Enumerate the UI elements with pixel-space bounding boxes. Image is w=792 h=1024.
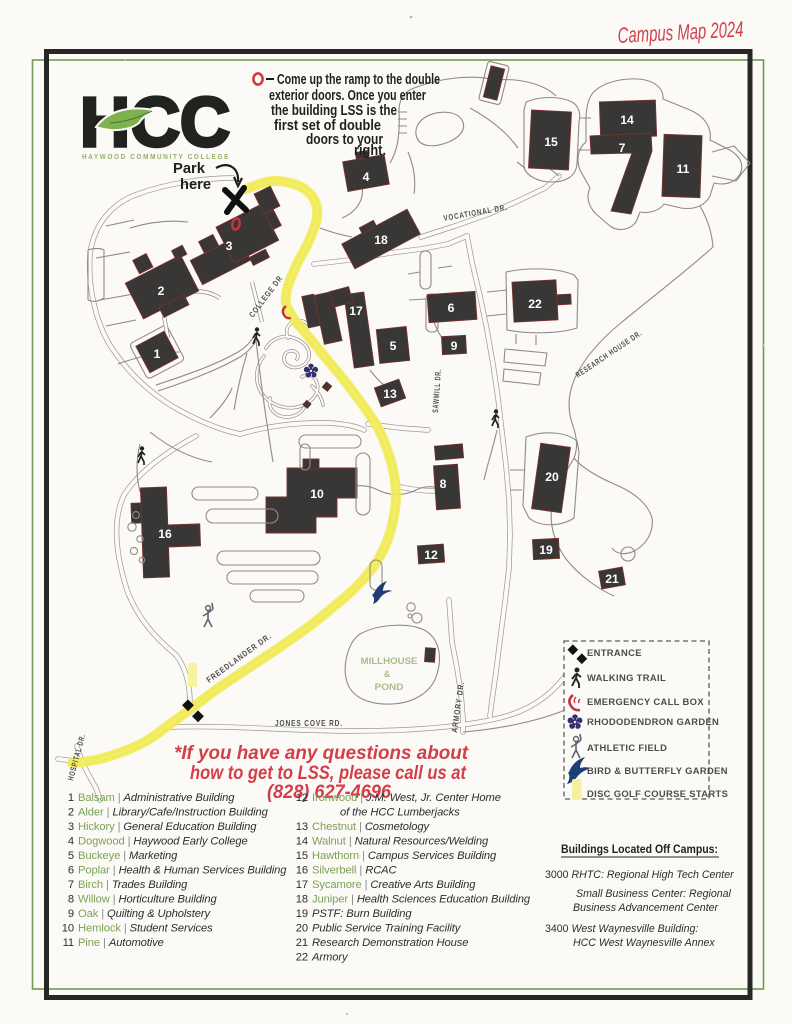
svg-text:7: 7 [619, 141, 626, 155]
svg-text:JONES COVE RD.: JONES COVE RD. [275, 719, 343, 728]
svg-text:18Juniper | Health Sciences Ed: 18Juniper | Health Sciences Education Bu… [296, 894, 531, 906]
svg-text:18: 18 [374, 233, 388, 247]
svg-text:11Pine | Automotive: 11Pine | Automotive [63, 937, 164, 949]
svg-text:14Walnut | Natural Resources/W: 14Walnut | Natural Resources/Welding [296, 836, 489, 848]
svg-text:the building LSS is the: the building LSS is the [271, 103, 397, 119]
svg-text:3Hickory | General Education B: 3Hickory | General Education Building [68, 821, 257, 833]
svg-text:Come up the ramp to the double: Come up the ramp to the double [277, 72, 440, 88]
svg-text:9: 9 [451, 339, 458, 353]
svg-text:10Hemlock | Student Services: 10Hemlock | Student Services [62, 923, 213, 935]
svg-text:6: 6 [448, 301, 455, 315]
svg-text:13: 13 [383, 387, 397, 401]
svg-text:Buildings Located Off Campus:: Buildings Located Off Campus: [561, 842, 718, 856]
svg-text:HCC West Waynesville Annex: HCC West Waynesville Annex [573, 937, 715, 949]
svg-text:exterior doors. Once you enter: exterior doors. Once you enter [269, 88, 426, 104]
svg-text:5Buckeye | Marketing: 5Buckeye | Marketing [68, 850, 178, 862]
svg-text:8Willow | Horticulture Buildin: 8Willow | Horticulture Building [68, 894, 218, 906]
svg-text:Small Business Center: Regiona: Small Business Center: Regional [576, 888, 732, 900]
svg-text:&: & [384, 669, 391, 679]
svg-text:WALKING TRAIL: WALKING TRAIL [587, 672, 666, 683]
svg-text:16Silverbell | RCAC: 16Silverbell | RCAC [296, 865, 398, 877]
svg-text:15: 15 [544, 135, 558, 149]
svg-text:5: 5 [390, 339, 397, 353]
svg-text:of the HCC Lumberjacks: of the HCC Lumberjacks [340, 807, 460, 819]
svg-text:20: 20 [545, 470, 559, 484]
svg-text:12Ironwood | J.M. West, Jr. Ce: 12Ironwood | J.M. West, Jr. Center Home [296, 792, 501, 804]
svg-text:8: 8 [440, 477, 447, 491]
svg-text:2: 2 [158, 284, 165, 298]
svg-text:3400 West Waynesville Building: 3400 West Waynesville Building: [545, 923, 698, 935]
svg-text:Business Advancement Center: Business Advancement Center [573, 902, 719, 914]
svg-text:17: 17 [349, 304, 363, 318]
svg-text:17Sycamore | Creative Arts Bui: 17Sycamore | Creative Arts Building [296, 879, 476, 891]
svg-text:ENTRANCE: ENTRANCE [587, 647, 642, 658]
svg-text:right.: right. [354, 143, 386, 159]
svg-text:14: 14 [620, 113, 634, 127]
svg-text:1Balsam | Administrative Build: 1Balsam | Administrative Building [68, 792, 235, 804]
svg-text:16: 16 [158, 527, 172, 541]
svg-text:12: 12 [424, 548, 438, 562]
svg-text:3: 3 [226, 239, 233, 253]
svg-text:4Dogwood | Haywood Early Colle: 4Dogwood | Haywood Early College [68, 836, 248, 848]
svg-text:7Birch | Trades Building: 7Birch | Trades Building [68, 879, 188, 891]
svg-text:15Hawthorn | Campus Services B: 15Hawthorn | Campus Services Building [296, 850, 497, 862]
svg-text:21Research Demonstration House: 21Research Demonstration House [296, 937, 469, 949]
svg-text:DISC GOLF COURSE STARTS: DISC GOLF COURSE STARTS [587, 788, 728, 799]
svg-text:2Alder | Library/Cafe/Instruct: 2Alder | Library/Cafe/Instruction Buildi… [68, 807, 269, 819]
svg-text:1: 1 [154, 347, 161, 361]
svg-text:9Oak | Quilting & Upholstery: 9Oak | Quilting & Upholstery [68, 908, 212, 920]
svg-text:ATHLETIC FIELD: ATHLETIC FIELD [587, 742, 667, 753]
svg-text:10: 10 [310, 487, 324, 501]
svg-text:how to get to LSS, please call: how to get to LSS, please call us at [190, 763, 467, 784]
svg-text:19: 19 [539, 543, 553, 557]
svg-text:20Public Service Training Faci: 20Public Service Training Facility [296, 923, 462, 935]
svg-text:POND: POND [375, 682, 405, 692]
svg-text:*If you have any questions abo: *If you have any questions about [174, 743, 469, 764]
svg-text:19PSTF: Burn Building: 19PSTF: Burn Building [296, 908, 413, 920]
svg-text:EMERGENCY CALL BOX: EMERGENCY CALL BOX [587, 696, 704, 707]
svg-text:22Armory: 22Armory [296, 952, 349, 964]
svg-text:MILLHOUSE: MILLHOUSE [361, 656, 418, 666]
svg-text:11: 11 [677, 162, 690, 176]
svg-text:3000 RHTC: Regional High Tech: 3000 RHTC: Regional High Tech Center [545, 869, 734, 881]
svg-text:BIRD & BUTTERFLY GARDEN: BIRD & BUTTERFLY GARDEN [587, 765, 728, 776]
svg-text:here: here [180, 177, 211, 193]
svg-text:21: 21 [605, 572, 619, 586]
svg-text:Park: Park [173, 161, 206, 177]
svg-text:4: 4 [363, 170, 370, 184]
svg-text:6Poplar | Health & Human Servi: 6Poplar | Health & Human Services Buildi… [68, 865, 287, 877]
svg-text:22: 22 [528, 297, 542, 311]
svg-text:HAYWOOD COMMUNITY COLLEGE: HAYWOOD COMMUNITY COLLEGE [82, 152, 230, 161]
svg-text:13Chestnut | Cosmetology: 13Chestnut | Cosmetology [296, 821, 431, 833]
svg-text:RHODODENDRON GARDEN: RHODODENDRON GARDEN [587, 716, 719, 727]
